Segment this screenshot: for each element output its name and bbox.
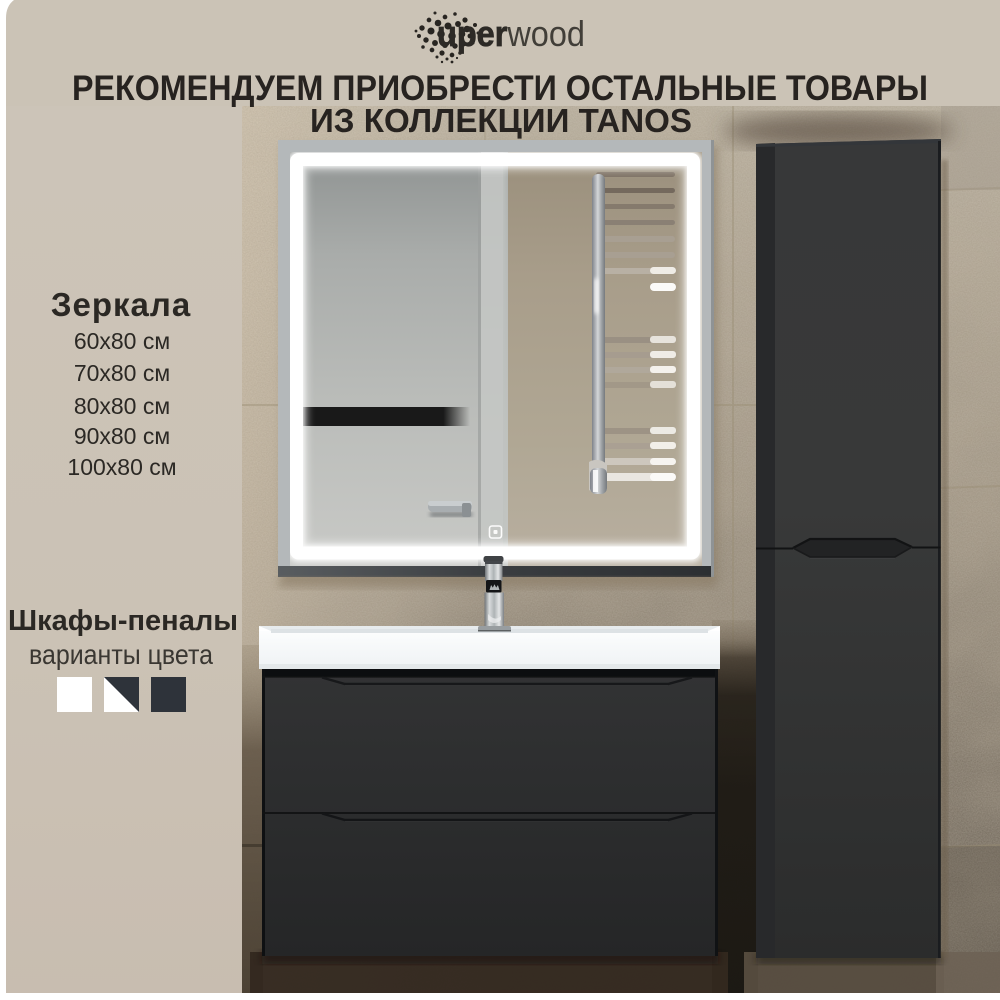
svg-text:ИЗ КОЛЛЕКЦИИ TANOS: ИЗ КОЛЛЕКЦИИ TANOS	[310, 102, 692, 139]
svg-text:60х80 см: 60х80 см	[74, 328, 170, 354]
svg-text:90х80 см: 90х80 см	[74, 423, 170, 449]
svg-text:70х80 см: 70х80 см	[74, 360, 170, 386]
svg-text:Зеркала: Зеркала	[51, 286, 191, 323]
svg-text:80х80 см: 80х80 см	[74, 393, 170, 419]
svg-text:100х80 см: 100х80 см	[67, 454, 176, 480]
svg-text:uperwood: uperwood	[437, 13, 585, 54]
svg-text:Шкафы-пеналы: Шкафы-пеналы	[8, 605, 238, 637]
svg-text:варианты цвета: варианты цвета	[29, 639, 213, 670]
